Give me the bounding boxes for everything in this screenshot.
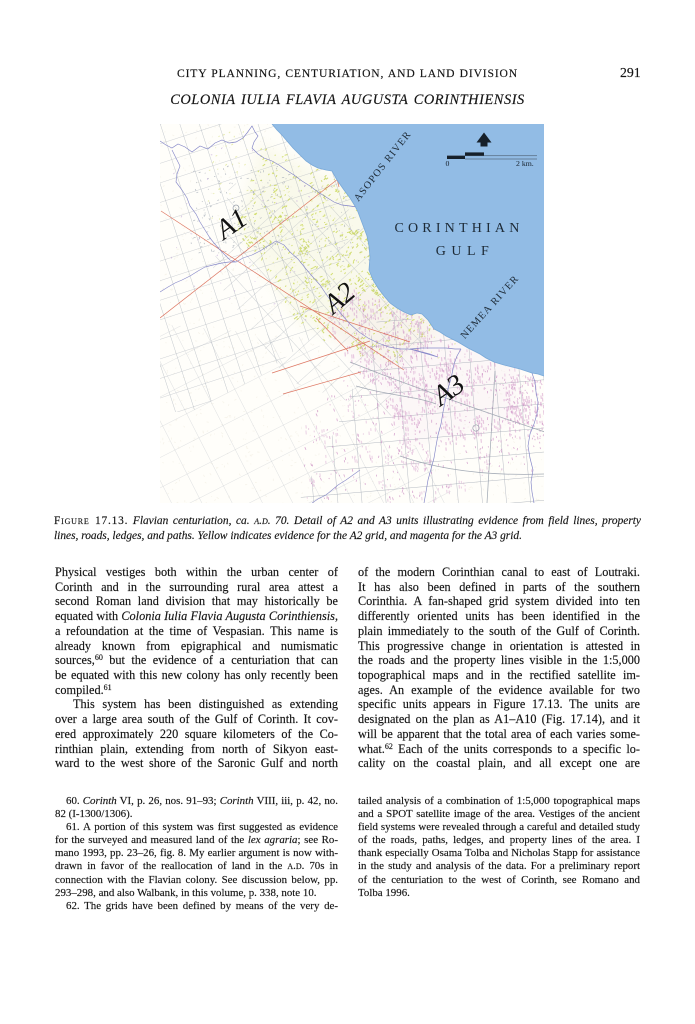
svg-text:2 km.: 2 km.: [516, 159, 534, 168]
svg-text:CORINTHIAN: CORINTHIAN: [394, 221, 523, 236]
svg-text:0: 0: [446, 159, 450, 168]
svg-text:GULF: GULF: [436, 244, 495, 259]
